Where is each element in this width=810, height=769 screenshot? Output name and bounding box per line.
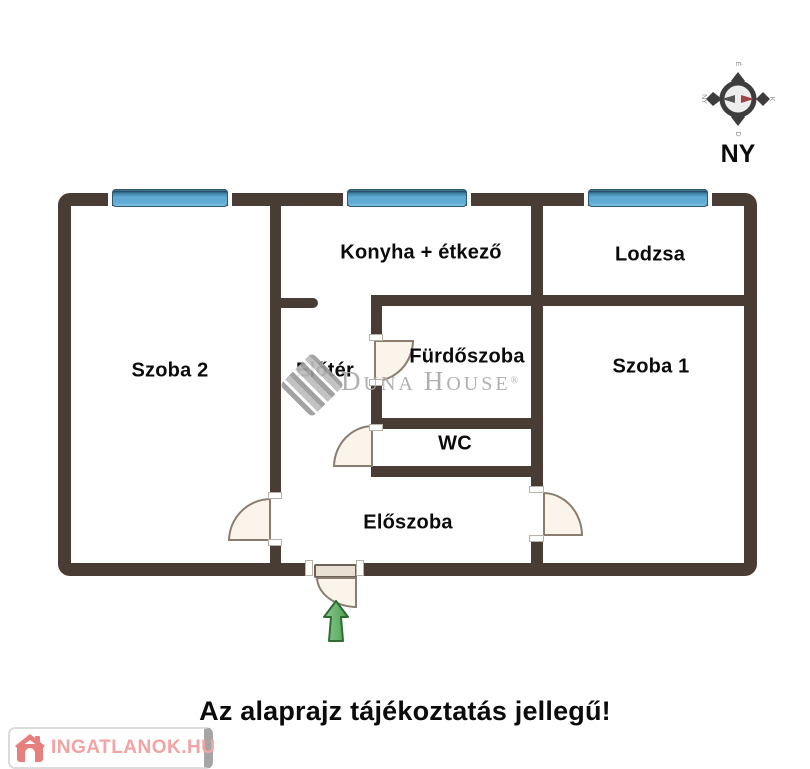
wall-lodzsa-furdo-top [371,295,757,306]
brand-word1-rest: UNA [364,373,416,395]
brand-word2-rest: OUSE [446,373,510,395]
brand-word2-initial: H [424,366,447,396]
wall-middle-divider-top [531,204,543,492]
door-jamb [529,486,544,493]
room-label-eloszoba: Előszoba [363,512,452,535]
door-jamb [268,492,282,499]
wall-wc-top [371,418,543,429]
ingatlanok-badge: INGATLANOK.HU [8,727,213,769]
floorplan-page: É D K NY NY Szoba 2 Konyha + étkező Lodz… [0,0,810,768]
registered-mark: ® [511,376,519,387]
door-jamb [305,560,313,576]
wall-szoba2-divider-top [270,204,281,498]
disclaimer-text: Az alaprajz tájékoztatás jellegű! [0,696,810,727]
compass-direction-label: NY [700,140,776,169]
window [588,189,708,207]
room-label-lodzsa: Lodzsa [615,244,685,267]
room-label-szoba1: Szoba 1 [613,356,690,379]
window [112,189,228,207]
room-label-szoba2: Szoba 2 [132,360,209,383]
badge-text: INGATLANOK.HU [51,737,215,759]
compass-letter-w: NY [701,94,707,104]
duna-house-logo-icon [279,352,344,417]
door-jamb [268,539,282,546]
duna-house-watermark: DUNAHOUSE® [279,352,529,412]
compass-letter-s: D [734,131,741,136]
entrance-door-leaf [314,564,357,578]
door-jamb [369,334,383,341]
wall-wc-bottom [371,466,543,477]
room-label-wc: WC [438,433,472,456]
compass-letter-e: K [768,97,775,102]
duna-house-wordmark: DUNAHOUSE® [341,366,518,397]
compass-letter-n: É [734,62,743,67]
room-label-konyha: Konyha + étkező [340,242,501,265]
door-jamb [529,535,544,542]
door-jamb [369,424,383,431]
entrance-arrow-icon [322,600,350,642]
house-icon [15,733,45,763]
door-jamb [356,560,364,576]
compass-icon: É D K NY [701,60,775,138]
wall-eloter-stub [270,298,318,308]
window [347,189,467,207]
brand-word1-initial: D [341,366,364,396]
